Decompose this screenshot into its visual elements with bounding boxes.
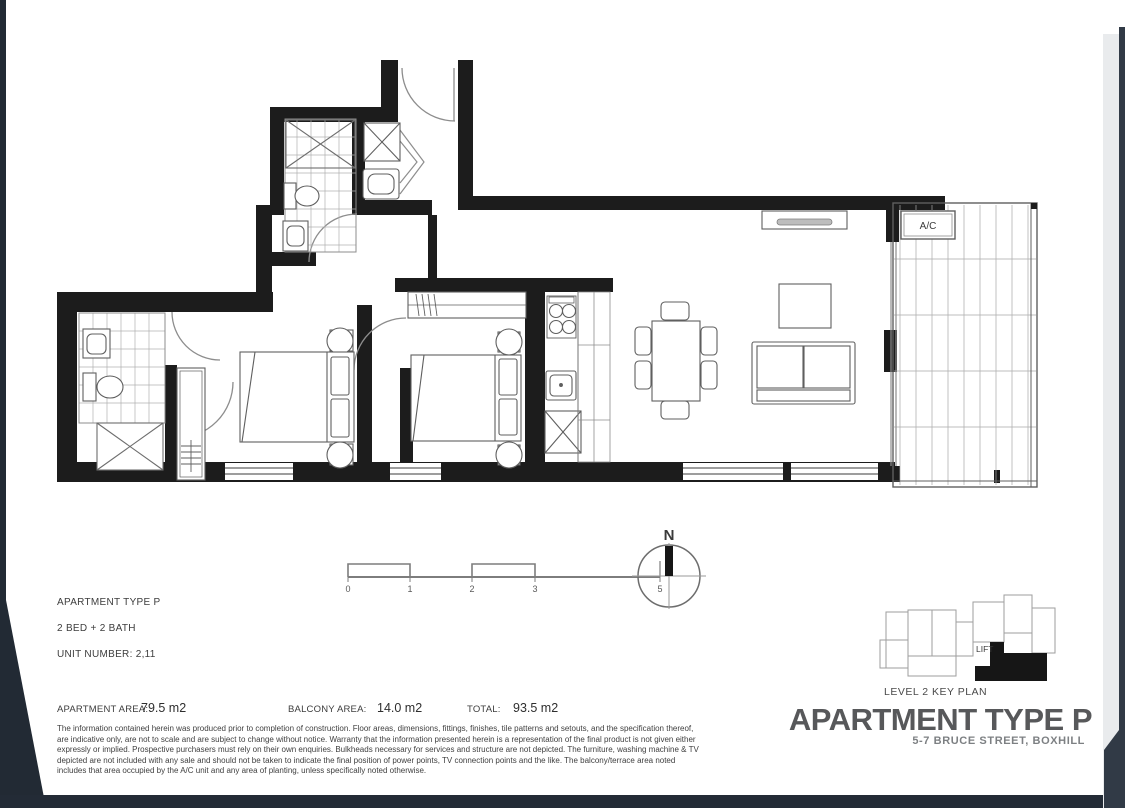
sheet-address: 5-7 BRUCE STREET, BOXHILL	[912, 735, 1085, 747]
tv-unit	[762, 211, 847, 229]
lift-label: LIFT	[976, 644, 993, 654]
scale-tick-2: 2	[469, 584, 474, 594]
toilet	[83, 373, 123, 401]
basin	[283, 221, 308, 251]
washing-machine	[364, 123, 400, 161]
bedside-table	[496, 329, 522, 355]
cooktop	[547, 296, 576, 338]
balcony: A/C	[891, 203, 1037, 487]
scale-tick-5: 5	[657, 584, 662, 594]
living-dining	[635, 211, 855, 419]
shower	[97, 423, 163, 470]
sofa	[752, 342, 855, 404]
balcony-area-value: 14.0 m2	[377, 701, 422, 715]
balcony-area-label: BALCONY AREA:	[288, 704, 366, 715]
bedside-table	[496, 442, 522, 468]
apartment-area-value: 79.5 m2	[141, 701, 186, 715]
shower	[286, 120, 355, 168]
bedside-table	[327, 328, 353, 354]
bed	[411, 355, 521, 441]
key-plan: LIFT	[880, 595, 1055, 681]
wardrobe	[177, 368, 205, 480]
ensuite-bathroom	[79, 313, 165, 470]
ac-label: A/C	[920, 221, 937, 232]
total-area-value: 93.5 m2	[513, 701, 558, 715]
kitchen	[545, 292, 610, 462]
coffee-table	[779, 284, 831, 328]
bedside-table	[327, 442, 353, 468]
total-area-label: TOTAL:	[467, 704, 501, 715]
scale-tick-1: 1	[407, 584, 412, 594]
key-plan-caption: LEVEL 2 KEY PLAN	[884, 686, 987, 698]
bed-bath-label: 2 BED + 2 BATH	[57, 623, 136, 634]
fridge-space	[545, 411, 581, 453]
toilet	[284, 183, 319, 209]
north-arrow: N	[632, 527, 706, 609]
sheet-title: APARTMENT TYPE P	[789, 702, 1092, 738]
scale-tick-0: 0	[345, 584, 350, 594]
scale-bar: 0 1 2 3 5	[345, 561, 662, 594]
bedroom-2	[408, 292, 526, 468]
apartment-type-label: APARTMENT TYPE P	[57, 597, 161, 608]
laundry	[363, 123, 400, 199]
sink	[546, 371, 576, 400]
floor-plan-sheet: A/C 0 1 2 3 5 N	[0, 0, 1125, 808]
bed	[240, 352, 354, 442]
dining-table-set	[635, 302, 717, 419]
tall-cabinets	[578, 292, 610, 462]
disclaimer-text: The information contained herein was pro…	[57, 724, 699, 777]
north-label: N	[664, 527, 675, 544]
apartment-area-label: APARTMENT AREA:	[57, 704, 148, 715]
laundry-trough	[363, 169, 399, 199]
ac-unit: A/C	[901, 211, 955, 239]
bedroom-1	[177, 328, 354, 480]
unit-number-label: UNIT NUMBER: 2,11	[57, 649, 156, 660]
basin	[83, 329, 110, 358]
wardrobe	[408, 292, 526, 318]
scale-tick-3: 3	[532, 584, 537, 594]
